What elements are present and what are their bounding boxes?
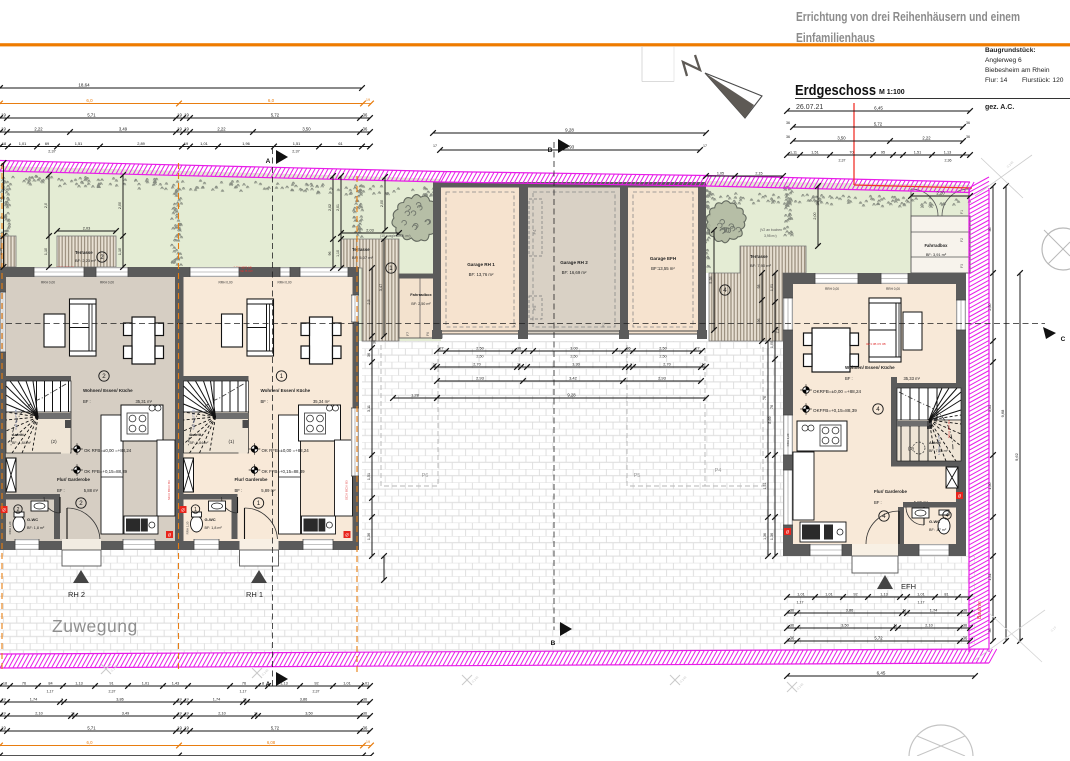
- svg-text:BF: 13,76 m²: BF: 13,76 m²: [469, 272, 494, 277]
- svg-text:1,31: 1,31: [988, 573, 992, 580]
- svg-text:4: 4: [876, 406, 880, 413]
- svg-text:2,50: 2,50: [659, 355, 666, 359]
- svg-text:6,08: 6,08: [267, 740, 276, 745]
- svg-text:Flur/ Garderobe: Flur/ Garderobe: [235, 477, 268, 482]
- svg-text:8: 8: [262, 682, 264, 686]
- svg-text:3,11: 3,11: [367, 405, 371, 412]
- svg-text:2,37: 2,37: [776, 327, 780, 334]
- svg-text:1,00: 1,00: [770, 341, 774, 348]
- svg-text:2,37: 2,37: [839, 159, 846, 163]
- svg-text:BF :: BF :: [235, 488, 243, 493]
- svg-text:3,00: 3,00: [570, 347, 577, 351]
- svg-text:Flurstück: 120: Flurstück: 120: [1022, 77, 1064, 84]
- svg-text:2,00: 2,00: [380, 200, 384, 207]
- svg-text:2,37: 2,37: [292, 150, 299, 154]
- svg-text:70: 70: [849, 151, 853, 155]
- svg-text:76: 76: [242, 682, 246, 686]
- svg-text:RRH 0,00: RRH 0,00: [278, 281, 292, 285]
- svg-text:19: 19: [1, 726, 6, 731]
- svg-text:6,0: 6,0: [268, 98, 275, 103]
- svg-text:OK FFB=+0,15=88,39: OK FFB=+0,15=88,39: [262, 469, 306, 474]
- svg-text:Flur/ Garderobe: Flur/ Garderobe: [57, 477, 90, 482]
- svg-text:1,51: 1,51: [367, 473, 371, 480]
- svg-text:36: 36: [790, 609, 794, 613]
- svg-text:F7: F7: [406, 332, 410, 336]
- svg-text:B: B: [551, 640, 556, 647]
- svg-text:19: 19: [184, 712, 188, 716]
- svg-text:11: 11: [254, 712, 258, 716]
- svg-text:1,13: 1,13: [880, 593, 887, 597]
- svg-text:4,68 tg. 17T,25: 4,68 tg. 17T,25: [192, 409, 196, 430]
- svg-text:2,50: 2,50: [659, 347, 666, 351]
- svg-text:(2): (2): [51, 439, 57, 444]
- svg-text:1,36: 1,36: [770, 533, 774, 540]
- svg-text:76: 76: [22, 682, 26, 686]
- svg-text:M 1:100: M 1:100: [879, 89, 905, 96]
- svg-text:P3: P3: [512, 322, 517, 328]
- svg-text:C: C: [1061, 336, 1066, 343]
- svg-text:BF :: BF :: [83, 399, 91, 404]
- svg-text:11: 11: [243, 698, 247, 702]
- svg-text:OK FFB=+0,15=88,39: OK FFB=+0,15=88,39: [84, 469, 128, 474]
- svg-text:2,00: 2,00: [118, 202, 122, 209]
- svg-text:2,10: 2,10: [218, 712, 225, 716]
- svg-text:6,0: 6,0: [86, 98, 93, 103]
- svg-text:Terrasse: Terrasse: [352, 247, 370, 252]
- svg-text:92: 92: [314, 682, 318, 686]
- svg-text:Zuwegung: Zuwegung: [52, 616, 138, 636]
- svg-text:2,15: 2,15: [755, 172, 762, 176]
- svg-text:BF: 1,8 m²: BF: 1,8 m²: [27, 526, 45, 530]
- svg-text:0E'3 0B 0'0 0B: 0E'3 0B 0'0 0B: [866, 342, 886, 346]
- svg-text:G-WC: G-WC: [27, 517, 38, 522]
- svg-text:2,01: 2,01: [336, 204, 340, 211]
- svg-text:2: 2: [17, 507, 20, 513]
- svg-text:17: 17: [703, 144, 707, 148]
- svg-text:RRH 0,00: RRH 0,00: [41, 281, 55, 285]
- svg-text:1,36: 1,36: [367, 533, 371, 540]
- svg-text:1,01: 1,01: [343, 682, 350, 686]
- svg-text:1,17: 1,17: [918, 601, 925, 605]
- svg-text:2,10: 2,10: [925, 624, 932, 628]
- svg-text:3,86: 3,86: [846, 609, 853, 613]
- svg-text:18,64: 18,64: [78, 83, 90, 88]
- svg-text:G-WC: G-WC: [929, 519, 940, 524]
- svg-text:8,69: 8,69: [768, 416, 772, 423]
- svg-text:F6: F6: [426, 332, 430, 336]
- svg-text:Fahrradbox: Fahrradbox: [410, 292, 432, 297]
- svg-text:1,50: 1,50: [988, 482, 992, 489]
- svg-text:5,71: 5,71: [87, 113, 96, 118]
- svg-text:2,37: 2,37: [109, 690, 116, 694]
- svg-text:Antritt: Antritt: [190, 432, 202, 437]
- svg-text:17: 17: [701, 363, 705, 367]
- svg-text:2,36: 2,36: [945, 159, 952, 163]
- svg-text:EFH: EFH: [901, 582, 916, 591]
- svg-text:BF: 1,8 m²: BF: 1,8 m²: [205, 526, 223, 530]
- svg-text:17: 17: [433, 144, 437, 148]
- svg-text:4: 4: [723, 287, 727, 294]
- svg-text:2,5: 2,5: [367, 299, 371, 304]
- svg-text:5,72: 5,72: [874, 636, 883, 641]
- svg-text:84: 84: [48, 682, 52, 686]
- svg-text:76: 76: [770, 405, 774, 409]
- svg-text:3,51: 3,51: [988, 405, 992, 412]
- svg-text:1,17: 1,17: [240, 690, 247, 694]
- svg-text:5,35: 5,35: [709, 276, 713, 283]
- svg-text:3,47: 3,47: [379, 284, 383, 291]
- svg-text:36: 36: [988, 227, 992, 231]
- svg-text:5,89 m²: 5,89 m²: [261, 488, 276, 493]
- svg-text:3,42: 3,42: [569, 376, 578, 381]
- svg-text:1,74: 1,74: [30, 698, 37, 702]
- svg-text:RH 1: RH 1: [246, 590, 263, 599]
- svg-text:26.07.21: 26.07.21: [796, 104, 823, 111]
- svg-text:SC3 I C3 I B3: SC3 I C3 I B3: [947, 420, 951, 438]
- svg-text:4: 4: [946, 513, 949, 519]
- svg-text:Garage RH 1: Garage RH 1: [467, 262, 495, 267]
- svg-text:BF: 1,84 m²: BF: 1,84 m²: [12, 441, 32, 445]
- svg-text:18: 18: [2, 141, 6, 146]
- svg-text:3,50: 3,50: [305, 712, 312, 716]
- svg-text:3,30: 3,30: [572, 363, 579, 367]
- svg-text:36: 36: [363, 698, 367, 702]
- svg-text:F5: F5: [532, 305, 537, 311]
- svg-text:1: 1: [194, 507, 197, 513]
- svg-text:36: 36: [790, 636, 795, 641]
- svg-text:36: 36: [963, 636, 968, 641]
- svg-text:2,50: 2,50: [570, 355, 577, 359]
- svg-text:RRH 0,00: RRH 0,00: [100, 281, 114, 285]
- svg-text:19: 19: [177, 726, 182, 731]
- svg-text:2,02: 2,02: [328, 204, 332, 211]
- svg-text:BF: 1,84 m²: BF: 1,84 m²: [190, 441, 210, 445]
- svg-text:19: 19: [177, 712, 181, 716]
- svg-text:36: 36: [363, 726, 368, 731]
- svg-text:Garage EFH: Garage EFH: [650, 256, 677, 261]
- svg-text:OK RFB=±0,00 =+88,24: OK RFB=±0,00 =+88,24: [262, 448, 310, 453]
- svg-text:Antritt: Antritt: [929, 440, 941, 445]
- svg-text:P4: P4: [715, 468, 722, 474]
- svg-text:OK RFB=±0,00 =+88,24: OK RFB=±0,00 =+88,24: [84, 448, 132, 453]
- svg-text:1,01: 1,01: [770, 284, 774, 291]
- svg-text:36: 36: [786, 121, 790, 125]
- svg-text:2,03: 2,03: [366, 229, 373, 233]
- svg-text:2,93: 2,93: [476, 376, 485, 381]
- svg-text:1,51: 1,51: [293, 141, 301, 146]
- svg-text:76: 76: [763, 396, 767, 400]
- svg-text:Wohnen/ Essen/ Küche: Wohnen/ Essen/ Küche: [845, 365, 895, 370]
- svg-text:Wohnen/ Essen/ Küche: Wohnen/ Essen/ Küche: [83, 388, 133, 393]
- svg-text:3,49: 3,49: [119, 127, 128, 132]
- svg-text:Fahrradbox: Fahrradbox: [924, 243, 948, 248]
- svg-text:BF :: BF :: [57, 488, 65, 493]
- svg-text:36: 36: [966, 135, 970, 139]
- svg-text:1,13: 1,13: [75, 682, 82, 686]
- svg-text:1,17: 1,17: [47, 690, 54, 694]
- svg-text:36: 36: [367, 353, 371, 357]
- svg-text:19: 19: [177, 113, 182, 118]
- svg-text:19: 19: [184, 113, 189, 118]
- svg-text:1,01: 1,01: [797, 593, 804, 597]
- svg-text:3,86: 3,86: [300, 698, 307, 702]
- svg-text:2,22: 2,22: [922, 136, 931, 141]
- svg-text:19: 19: [1, 698, 5, 702]
- svg-text:2,50: 2,50: [476, 355, 483, 359]
- svg-text:92: 92: [853, 593, 857, 597]
- svg-text:36: 36: [363, 113, 368, 118]
- svg-text:1: 1: [61, 698, 63, 702]
- svg-text:2,50: 2,50: [476, 347, 483, 351]
- svg-text:2,50: 2,50: [988, 303, 992, 310]
- svg-text:1: 1: [280, 373, 284, 380]
- svg-text:11: 11: [71, 712, 75, 716]
- svg-text:BF: 7,68 m²: BF: 7,68 m²: [929, 449, 949, 453]
- svg-text:2,22: 2,22: [217, 127, 226, 132]
- svg-text:1,01: 1,01: [142, 682, 149, 686]
- svg-text:Anglerweg 6: Anglerweg 6: [985, 57, 1022, 64]
- svg-text:2,0: 2,0: [0, 197, 3, 202]
- svg-text:Wohnen/ Essen/ Küche: Wohnen/ Essen/ Küche: [261, 388, 311, 393]
- svg-text:17: 17: [433, 363, 437, 367]
- svg-text:RRH 1,20: RRH 1,20: [8, 521, 12, 534]
- svg-text:9,28: 9,28: [567, 393, 576, 398]
- svg-text:(V2 an buchen: (V2 an buchen: [760, 228, 782, 232]
- svg-text:3,50: 3,50: [837, 136, 846, 141]
- svg-text:1,05: 1,05: [717, 172, 724, 176]
- svg-text:BF :: BF :: [845, 376, 853, 381]
- svg-text:1,11: 1,11: [790, 151, 797, 155]
- svg-text:36: 36: [786, 135, 790, 139]
- svg-text:Terrasse: Terrasse: [75, 250, 93, 255]
- svg-text:B: B: [548, 147, 553, 154]
- svg-text:1,10: 1,10: [0, 248, 3, 255]
- svg-text:95: 95: [881, 151, 885, 155]
- svg-text:Baugrundstück:: Baugrundstück:: [985, 47, 1036, 54]
- svg-text:19: 19: [366, 98, 370, 102]
- svg-text:gez. A.C.: gez. A.C.: [985, 104, 1014, 111]
- svg-text:6,45: 6,45: [877, 671, 886, 676]
- svg-text:1,13: 1,13: [944, 151, 951, 155]
- svg-text:19: 19: [1, 127, 6, 132]
- svg-text:RRH 0,00: RRH 0,00: [219, 281, 233, 285]
- svg-text:9,28: 9,28: [565, 128, 574, 133]
- svg-text:3,50: 3,50: [841, 624, 848, 628]
- svg-text:P6: P6: [422, 473, 429, 479]
- svg-text:1,01: 1,01: [825, 593, 832, 597]
- svg-text:8,93: 8,93: [566, 145, 575, 150]
- svg-text:1,01: 1,01: [200, 141, 208, 146]
- svg-text:1,51: 1,51: [763, 483, 767, 490]
- svg-text:36: 36: [988, 628, 992, 632]
- svg-text:BF :: BF :: [874, 500, 882, 505]
- svg-text:1: 1: [630, 363, 632, 367]
- svg-text:1,51: 1,51: [811, 151, 818, 155]
- svg-text:1,43: 1,43: [172, 682, 179, 686]
- svg-text:3,50: 3,50: [302, 127, 311, 132]
- svg-text:Garage RH 2: Garage RH 2: [560, 260, 588, 265]
- svg-text:36: 36: [517, 347, 521, 351]
- svg-text:BF: 7,90 m²: BF: 7,90 m²: [750, 263, 772, 268]
- svg-text:36: 36: [626, 347, 630, 351]
- svg-text:98: 98: [757, 285, 761, 289]
- svg-text:1,74: 1,74: [930, 609, 937, 613]
- svg-text:2,0: 2,0: [44, 203, 48, 208]
- svg-text:1: 1: [257, 500, 261, 507]
- svg-text:9,62: 9,62: [1014, 452, 1019, 461]
- svg-text:19: 19: [184, 698, 188, 702]
- svg-text:BF: 5,07 m²: BF: 5,07 m²: [352, 255, 374, 260]
- svg-text:19: 19: [177, 127, 182, 132]
- svg-text:19: 19: [1, 113, 6, 118]
- svg-text:RH 2: RH 2: [68, 590, 85, 599]
- svg-text:2,89: 2,89: [137, 141, 145, 146]
- svg-text:F4: F4: [532, 229, 537, 235]
- svg-text:3,86: 3,86: [116, 698, 123, 702]
- svg-text:2: 2: [102, 373, 106, 380]
- svg-text:SC3 I BC3 I B3: SC3 I BC3 I B3: [345, 480, 349, 500]
- svg-text:P5: P5: [634, 473, 641, 479]
- svg-text:19: 19: [184, 141, 188, 146]
- svg-text:1: 1: [389, 265, 393, 272]
- svg-text:11: 11: [517, 363, 521, 367]
- svg-text:RRH 0,00: RRH 0,00: [825, 287, 839, 291]
- svg-text:36: 36: [363, 712, 367, 716]
- svg-text:BF:13,55 m²: BF:13,55 m²: [651, 266, 675, 271]
- svg-text:2,93: 2,93: [658, 376, 667, 381]
- svg-text:35,31 m²: 35,31 m²: [135, 399, 152, 404]
- svg-text:2,70: 2,70: [473, 363, 480, 367]
- svg-text:1,01: 1,01: [917, 593, 924, 597]
- svg-text:BF: 16,69 m²: BF: 16,69 m²: [562, 270, 587, 275]
- svg-text:RRH 0,00: RRH 0,00: [886, 287, 900, 291]
- svg-text:1,51: 1,51: [75, 141, 83, 146]
- svg-text:2,37: 2,37: [313, 690, 320, 694]
- svg-text:2,22: 2,22: [34, 127, 43, 132]
- svg-text:Errichtung von drei Reihenhäus: Errichtung von drei Reihenhäusern und ei…: [796, 10, 1020, 24]
- svg-text:Flur: 14: Flur: 14: [985, 77, 1008, 84]
- svg-text:OKRFB=±0,00 =+88,24: OKRFB=±0,00 =+88,24: [813, 389, 862, 394]
- svg-text:5,71: 5,71: [87, 726, 96, 731]
- svg-text:6,45: 6,45: [874, 106, 883, 111]
- svg-text:19: 19: [1, 712, 5, 716]
- svg-text:19: 19: [366, 740, 370, 744]
- svg-text:19: 19: [184, 726, 189, 731]
- svg-text:36: 36: [966, 121, 970, 125]
- svg-text:OKFFB=+0,15=88,39: OKFFB=+0,15=88,39: [813, 408, 857, 413]
- svg-text:BF: ,87 m²: BF: ,87 m²: [929, 528, 947, 532]
- svg-text:1,10: 1,10: [118, 248, 122, 255]
- svg-text:(10 ausgleichsfl. m²): (10 ausgleichsfl. m²): [380, 234, 411, 238]
- svg-text:G-WC: G-WC: [205, 517, 216, 522]
- svg-text:6,0: 6,0: [87, 740, 94, 745]
- svg-text:1,10: 1,10: [44, 248, 48, 255]
- svg-text:Erdgeschoss: Erdgeschoss: [795, 83, 876, 99]
- svg-text:61: 61: [338, 141, 342, 146]
- svg-text:1,36: 1,36: [763, 533, 767, 540]
- svg-text:1,01: 1,01: [362, 682, 369, 686]
- svg-text:2,37: 2,37: [48, 150, 55, 154]
- svg-text:1,74: 1,74: [213, 698, 220, 702]
- svg-text:2,70: 2,70: [663, 363, 670, 367]
- svg-text:1,51: 1,51: [914, 151, 921, 155]
- svg-text:Antritt: Antritt: [12, 432, 24, 437]
- svg-text:1,10: 1,10: [336, 250, 340, 257]
- svg-text:3,49: 3,49: [122, 712, 129, 716]
- svg-text:5,72: 5,72: [874, 122, 883, 127]
- svg-text:36: 36: [963, 609, 967, 613]
- svg-text:1,96: 1,96: [242, 141, 250, 146]
- svg-text:96: 96: [757, 319, 761, 323]
- svg-text:2,20: 2,20: [936, 191, 945, 196]
- svg-text:4,68 tg. 17T,25: 4,68 tg. 17T,25: [14, 409, 18, 430]
- svg-text:Terrasse: Terrasse: [750, 254, 768, 259]
- svg-text:F3: F3: [960, 264, 964, 268]
- svg-text:5,88 m²: 5,88 m²: [84, 488, 99, 493]
- svg-text:35,34 m²: 35,34 m²: [313, 399, 330, 404]
- svg-text:11: 11: [894, 624, 898, 628]
- svg-text:2,10: 2,10: [35, 712, 42, 716]
- svg-text:9,68: 9,68: [1000, 409, 1005, 418]
- svg-text:69: 69: [45, 141, 49, 146]
- svg-text:BF :: BF :: [261, 399, 269, 404]
- svg-text:5,72: 5,72: [271, 726, 280, 731]
- svg-text:BF: 2,50 m²: BF: 2,50 m²: [411, 302, 431, 306]
- svg-text:81: 81: [944, 593, 948, 597]
- svg-text:2,00: 2,00: [813, 212, 817, 219]
- svg-text:3,95 m²): 3,95 m²): [764, 234, 777, 238]
- svg-text:BF: 2,23 m²: BF: 2,23 m²: [75, 258, 97, 263]
- svg-text:2: 2: [100, 254, 104, 261]
- svg-text:36: 36: [963, 624, 967, 628]
- svg-text:1,13: 1,13: [280, 682, 287, 686]
- svg-text:Flur/ Garderobe: Flur/ Garderobe: [874, 489, 907, 494]
- svg-text:1,01: 1,01: [19, 141, 27, 146]
- svg-text:1,17: 1,17: [797, 601, 804, 605]
- svg-text:F2: F2: [960, 238, 964, 242]
- svg-text:11: 11: [903, 609, 907, 613]
- svg-text:91: 91: [109, 682, 113, 686]
- svg-text:2: 2: [79, 500, 83, 507]
- svg-text:(1): (1): [229, 439, 235, 444]
- svg-text:F1: F1: [960, 210, 964, 214]
- svg-text:96: 96: [328, 252, 332, 256]
- svg-text:36: 36: [790, 624, 794, 628]
- svg-text:A: A: [266, 158, 271, 165]
- svg-text:2,03: 2,03: [83, 227, 90, 231]
- svg-text:Baulinie: Baulinie: [977, 601, 983, 619]
- svg-text:1,28: 1,28: [411, 393, 420, 398]
- svg-text:Einfamilienhaus: Einfamilienhaus: [796, 31, 875, 45]
- svg-text:35,33 m²: 35,33 m²: [903, 376, 920, 381]
- svg-text:SC3 I BC3 I B3: SC3 I BC3 I B3: [167, 480, 171, 500]
- svg-text:RRH 1,20: RRH 1,20: [786, 433, 790, 446]
- svg-text:Biebesheim am Rhein: Biebesheim am Rhein: [985, 67, 1050, 74]
- svg-text:5,72: 5,72: [271, 113, 280, 118]
- svg-text:BF: 3,91 m²: BF: 3,91 m²: [926, 252, 947, 257]
- svg-text:P2: P2: [601, 322, 606, 328]
- svg-text:27: 27: [439, 347, 443, 351]
- svg-text:19: 19: [177, 698, 181, 702]
- svg-text:19: 19: [184, 127, 189, 132]
- svg-text:18: 18: [3, 682, 7, 686]
- svg-text:27: 27: [695, 347, 699, 351]
- svg-text:36: 36: [373, 340, 377, 344]
- svg-text:36: 36: [363, 127, 368, 132]
- svg-text:RRH 1,20: RRH 1,20: [186, 521, 190, 534]
